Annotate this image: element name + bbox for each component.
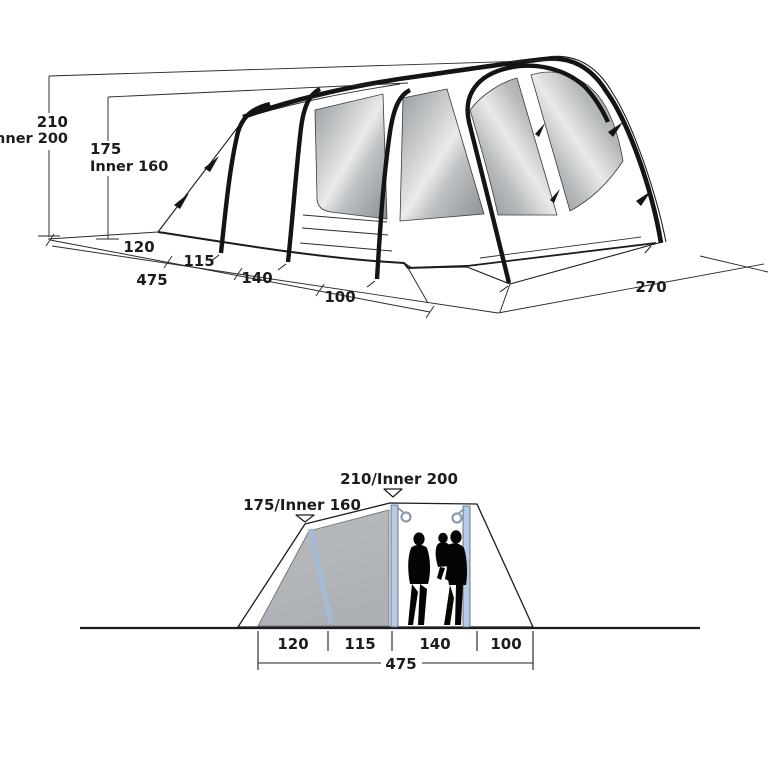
dim-seg-label: 120	[123, 238, 154, 256]
base-peg-tick	[500, 286, 508, 292]
dim-seg-label: 115	[183, 252, 214, 270]
dim-seg-label: 140	[241, 269, 272, 287]
side-window-rear	[315, 94, 387, 219]
floor-seg-label: 100	[490, 635, 521, 653]
person-head	[450, 530, 461, 544]
dim-seg-label: 100	[324, 288, 355, 306]
elevation-peak-label: 210/Inner 200	[340, 470, 458, 488]
person-body	[447, 543, 467, 585]
floor-seg-label: 120	[277, 635, 308, 653]
person-head	[413, 532, 424, 545]
dim-height-total-label: 210	[37, 113, 68, 131]
base-peg-tick	[367, 281, 375, 287]
base-peg-tick	[645, 246, 651, 253]
dim-tick	[426, 306, 434, 318]
elevation-view: 210/Inner 200 175/Inner 160 120 115 140 …	[80, 470, 700, 673]
floor-seg-label: 140	[419, 635, 450, 653]
floor-total-label: 475	[385, 655, 416, 673]
tent-dimension-diagram: 210 Inner 200 175 Inner 160 120 115 140 …	[0, 0, 768, 768]
diagram-svg: 210 Inner 200 175 Inner 160 120 115 140 …	[0, 0, 768, 768]
left-pole	[391, 505, 398, 627]
pointer-triangle-icon	[296, 515, 314, 522]
child-head	[438, 533, 448, 543]
dim-total-label: 475	[136, 271, 167, 289]
dim-height-side-label: 175	[90, 140, 121, 158]
dim-front-width-label: 270	[635, 278, 666, 296]
elevation-side-label: 175/Inner 160	[243, 496, 361, 514]
floor-seg-label: 115	[344, 635, 375, 653]
dim-height-total-inner-label: Inner 200	[0, 131, 68, 147]
pointer-triangle-icon	[384, 489, 402, 497]
person-body	[408, 545, 430, 584]
dim-height-side-inner-label: Inner 160	[90, 159, 168, 175]
dim-ext-inner-end	[408, 268, 428, 303]
base-peg-tick	[278, 264, 286, 270]
perspective-view: 210 Inner 200 175 Inner 160 120 115 140 …	[0, 56, 768, 318]
